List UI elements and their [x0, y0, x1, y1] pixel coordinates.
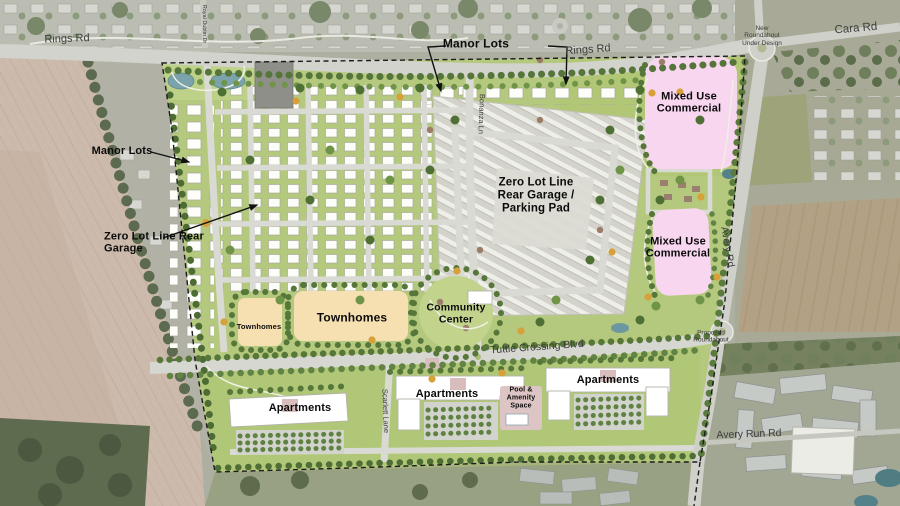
site-plan-map-graphic: [0, 0, 900, 506]
site-plan-screenshot: Rings Rd Rings Rd Cara Rd Royal Dublin D…: [0, 0, 900, 506]
